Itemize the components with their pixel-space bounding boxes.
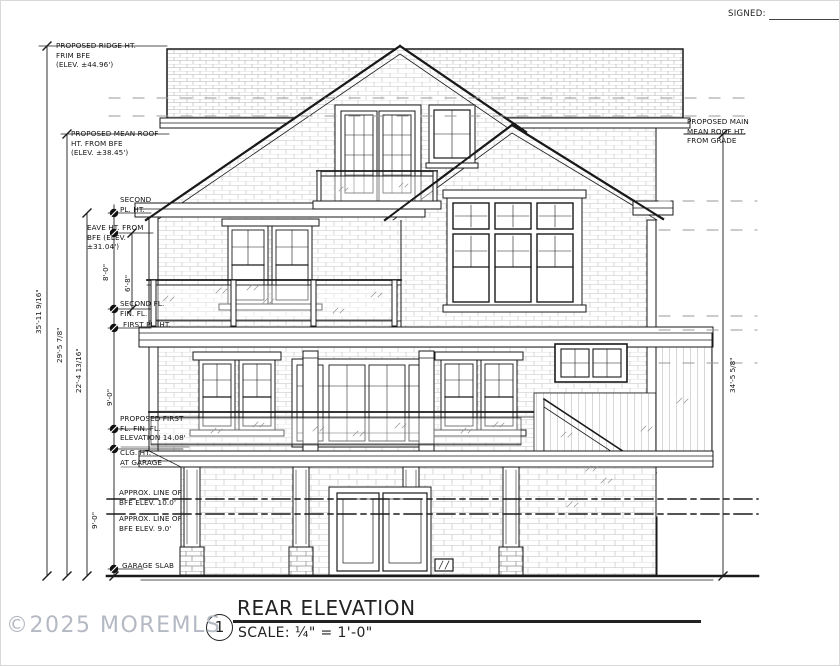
dimension-right-total: 34'-5 5/8": [728, 358, 737, 393]
balcony-railing: [313, 171, 441, 209]
garage-door: [329, 487, 431, 575]
gable-window: [426, 105, 478, 168]
dimension-mean-roof-height: 29'-5 7/8": [55, 328, 64, 363]
signed-label: SIGNED:: [728, 9, 766, 19]
annotation-ridge-height: PROPOSED RIDGE HT. FRIM BFE (ELEV. ±44.9…: [56, 41, 136, 70]
garage-band: [139, 451, 713, 467]
title-underline: [233, 620, 701, 623]
annotation-eave-height: EAVE HT. FROM BFE (ELEV. ±31.04'): [87, 223, 144, 252]
dimension-garage-story: 9'-0": [90, 512, 99, 529]
annotation-bfe-9: APPROX. LINE OF BFE ELEV. 9.0': [119, 514, 182, 533]
triple-window: [443, 190, 586, 312]
annotation-first-plate: FIRST PL. HT.: [123, 320, 171, 330]
drawing-title: REAR ELEVATION: [237, 596, 416, 620]
annotation-garage-ceiling: CLG. HT. AT GARAGE: [120, 448, 162, 467]
drawing-scale: SCALE: ¼" = 1'-0": [238, 625, 373, 641]
signed-line: [769, 19, 839, 20]
annotation-second-floor: SECOND FL. FIN. FL.: [120, 299, 164, 318]
dimension-first-story: 9'-0": [105, 389, 114, 406]
annotation-second-plate: SECOND PL. HT.: [120, 195, 151, 214]
watermark: ©2025 MOREMLS: [6, 613, 221, 638]
stair-window: [555, 344, 627, 382]
ground-line: [107, 576, 758, 580]
dimension-mid-height: 22'-4 13/16": [74, 348, 83, 393]
annotation-mean-roof: PROPOSED MEAN ROOF HT. FROM BFE (ELEV. ±…: [71, 129, 158, 158]
dimension-second-story: 8'-0": [101, 264, 110, 281]
annotation-first-floor: PROPOSED FIRST FL. FIN. FL. ELEVATION 14…: [120, 414, 186, 443]
annotation-main-roof: PROPOSED MAIN MEAN ROOF HT. FROM GRADE: [687, 117, 749, 146]
dimension-total-height: 35'-11 9/16": [34, 289, 43, 334]
elevation-sheet: PROPOSED RIDGE HT. FRIM BFE (ELEV. ±44.9…: [0, 0, 840, 666]
annotation-garage-slab: GARAGE SLAB: [122, 561, 174, 571]
dimension-eave-to-floor: 6'-8": [123, 275, 132, 292]
second-floor-deck-railing: [147, 280, 401, 326]
vent-grille: [435, 559, 453, 571]
annotation-bfe-10: APPROX. LINE OF BFE ELEV. 10.0': [119, 488, 182, 507]
